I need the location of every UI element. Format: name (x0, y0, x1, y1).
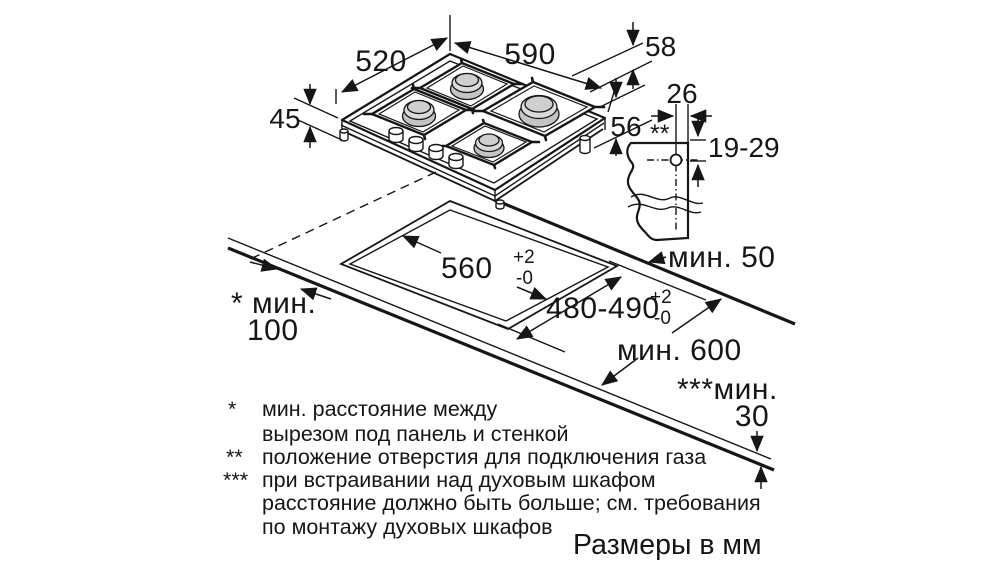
dim-26-label: 26 (666, 78, 697, 109)
dim-45-label: 45 (269, 103, 300, 134)
ext-line-58-bottom (590, 61, 652, 92)
ext-line-480-s (498, 324, 565, 352)
dim-520-label: 520 (355, 45, 407, 78)
min50-label: мин. 50 (668, 241, 776, 274)
footnotes: * мин. расстояние между вырезом под пане… (223, 397, 761, 539)
dim-480-label: 480-490 (546, 292, 660, 325)
footnote1-line2: вырезом под панель и стенкой (262, 422, 569, 446)
dim-1929-label: 19-29 (708, 132, 780, 163)
dim-480-tol-plus: +2 (650, 287, 672, 308)
footnote1-marker: * (228, 397, 237, 421)
min50-arrow (649, 257, 666, 262)
dim-480-tol-minus: -0 (654, 308, 671, 329)
dim-590-label: 590 (504, 38, 556, 71)
footnote3-line2: расстояние должно быть больше; см. требо… (262, 491, 761, 515)
footnote2-marker: ** (226, 445, 243, 469)
dim-560-label: 560 (441, 252, 493, 285)
min100-label-line2: 100 (247, 314, 299, 347)
units-note: Размеры в мм (573, 529, 762, 561)
footnote3-marker: *** (223, 468, 249, 492)
dim-56-label: 56 (610, 111, 641, 142)
gas-hole (671, 155, 682, 166)
footnote3-line3: по монтажу духовых шкафов (262, 515, 553, 539)
dim-58-label: 58 (645, 31, 676, 62)
gas-marker-asterisks: ** (650, 120, 670, 148)
min600-label: мин. 600 (617, 334, 742, 367)
footnote2-line1: положение отверстия для подключения газа (262, 445, 706, 469)
dim-560-tol-plus: +2 (513, 247, 535, 268)
footnote1-line1: мин. расстояние между (262, 397, 497, 421)
gas-connection-detail (627, 143, 703, 240)
installation-diagram: 520 590 58 56 45 26 ** 19-29 (0, 0, 1000, 562)
footnote3-line1: при встраивании над духовым шкафом (262, 468, 656, 492)
diagram-svg: 520 590 58 56 45 26 ** 19-29 (0, 0, 1000, 562)
dim-560-tol-minus: -0 (516, 268, 533, 289)
dim-line-600-b (672, 299, 721, 333)
min30-label-line2: 30 (735, 400, 769, 433)
ext-line-45-bottom (298, 120, 342, 140)
ext-line-56-top (600, 85, 645, 107)
ext-line-45-top (294, 98, 338, 118)
